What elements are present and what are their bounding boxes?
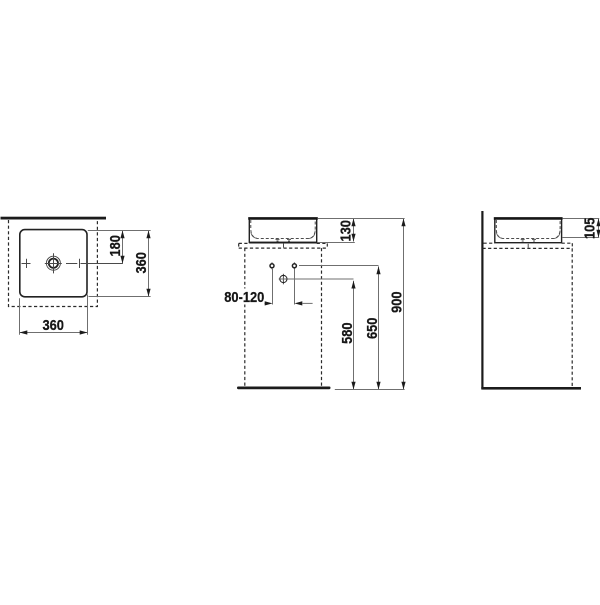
svg-text:360: 360 bbox=[133, 252, 149, 273]
svg-text:105: 105 bbox=[582, 217, 598, 239]
svg-text:130: 130 bbox=[338, 220, 354, 241]
svg-text:180: 180 bbox=[107, 235, 123, 256]
svg-text:650: 650 bbox=[364, 318, 380, 339]
svg-text:900: 900 bbox=[389, 291, 405, 312]
svg-text:360: 360 bbox=[42, 317, 63, 333]
svg-text:80-120: 80-120 bbox=[224, 289, 264, 305]
svg-text:580: 580 bbox=[339, 322, 355, 343]
